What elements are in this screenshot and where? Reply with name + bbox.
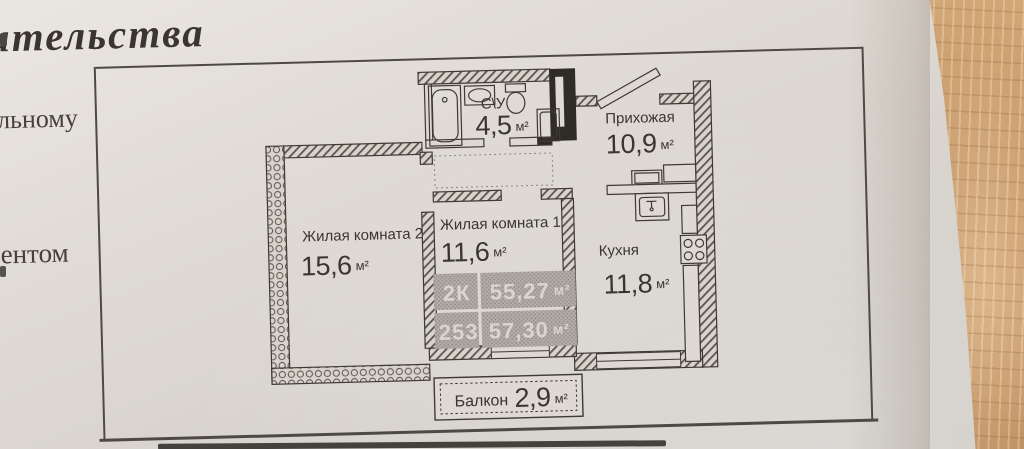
washing-machine-icon [537, 109, 560, 142]
wall-room2-top [284, 142, 422, 158]
hallway-name: Прихожая [605, 109, 675, 128]
entrance-door-swing [596, 68, 661, 109]
left-cell-text-2: ентом [0, 238, 69, 271]
wall-hall-top-left [576, 96, 597, 107]
living1-area: 11,6м² [440, 236, 507, 268]
kitchen-area: 11,8м² [603, 268, 670, 300]
heading-fragment: ительства [0, 8, 205, 62]
left-cell-text-1: льному [0, 103, 78, 135]
bathroom-area: 4,5м² [475, 110, 530, 141]
balcony-name: Балкон [454, 392, 508, 410]
wall-left [266, 146, 290, 382]
stamp-flat-number: 253 [438, 319, 478, 345]
stove-icon [680, 235, 707, 264]
table-divider-left [94, 67, 106, 440]
living2-area: 15,6м² [301, 250, 370, 282]
hallway-cabinet-icon [632, 164, 697, 186]
wall-room1-top-left [433, 190, 501, 202]
wall-corridor-stub [420, 152, 432, 164]
wall-room1-top-right [541, 188, 572, 199]
vent-shaft [549, 68, 577, 141]
corridor-dashed-outline [434, 153, 553, 188]
photo-of-document: ительства льному ентом [0, 0, 1024, 449]
kitchen-sink-icon [635, 193, 669, 221]
living2-name: Жилая комната 2 [302, 225, 423, 245]
floor-plan: 2К 55,27м² 253 57,30м² Балкон 2,9м² С\У … [252, 52, 732, 436]
kitchen-name: Кухня [599, 242, 640, 260]
paper-speck [0, 33, 7, 46]
apartment-stamp: 2К 55,27м² 253 57,30м² [433, 270, 577, 349]
balcony-box: Балкон 2,9м² [434, 374, 583, 420]
paper-speck [0, 266, 6, 277]
hallway-area: 10,9м² [606, 128, 675, 160]
wall-bath-bottom-right [510, 137, 538, 146]
living1-name: Жилая комната 1 [440, 214, 561, 234]
wall-bath-top [418, 69, 550, 84]
wall-room2-bottom [272, 364, 430, 384]
paper-edge-shadow [848, 0, 930, 449]
bathtub-icon [428, 85, 462, 146]
wall-hall-top-right [660, 93, 696, 104]
stamp-flat-type: 2К [442, 280, 470, 306]
